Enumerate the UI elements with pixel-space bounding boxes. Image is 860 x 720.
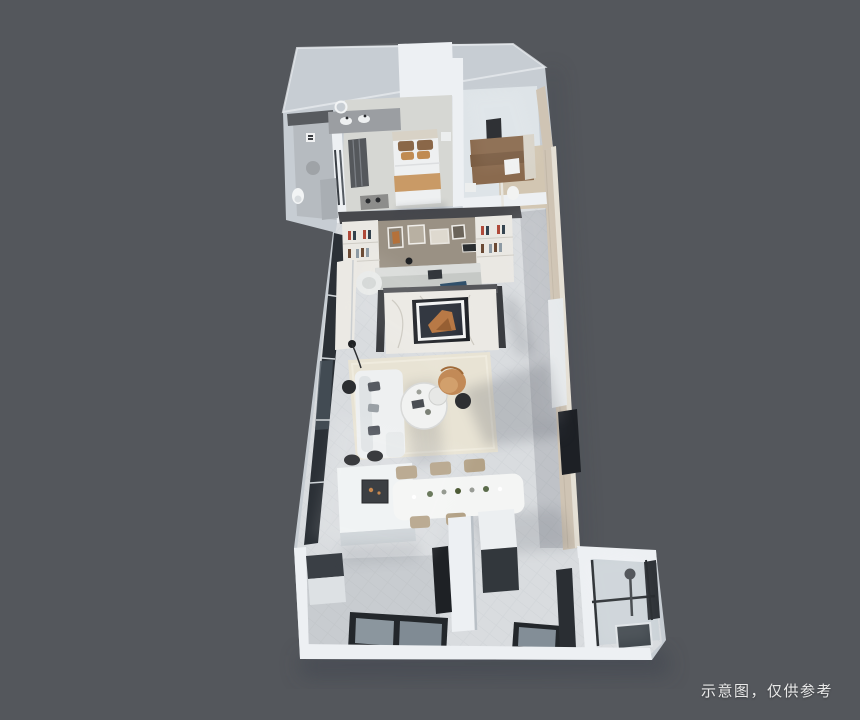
desk-lamp [406, 258, 413, 265]
fuzzy-stool [306, 161, 320, 175]
kitchen-counter [306, 553, 344, 579]
caption-disclaimer: 示意图，仅供参考 [701, 680, 833, 701]
entry-cabinet-top [478, 509, 517, 550]
floorplan-render [0, 0, 860, 720]
laptop [428, 270, 443, 280]
ensuite-toilet [507, 186, 519, 200]
ottoman [455, 393, 471, 409]
pillow [398, 141, 415, 152]
wall-plaque [306, 133, 315, 142]
throw-pillow [368, 381, 381, 392]
nightstand [465, 183, 476, 192]
entry-cabinet-front [481, 547, 519, 593]
bedroom-divider-wall [452, 58, 464, 207]
master-bedroom [348, 129, 451, 210]
screenshot-stage: 示意图，仅供参考 [0, 0, 860, 720]
wardrobe-stripes [348, 138, 369, 188]
pillow [417, 140, 434, 151]
throw-pillow [368, 404, 380, 413]
bench [360, 194, 389, 210]
nightstand [441, 132, 451, 141]
side-table [342, 380, 356, 394]
bed-throw [394, 173, 441, 192]
